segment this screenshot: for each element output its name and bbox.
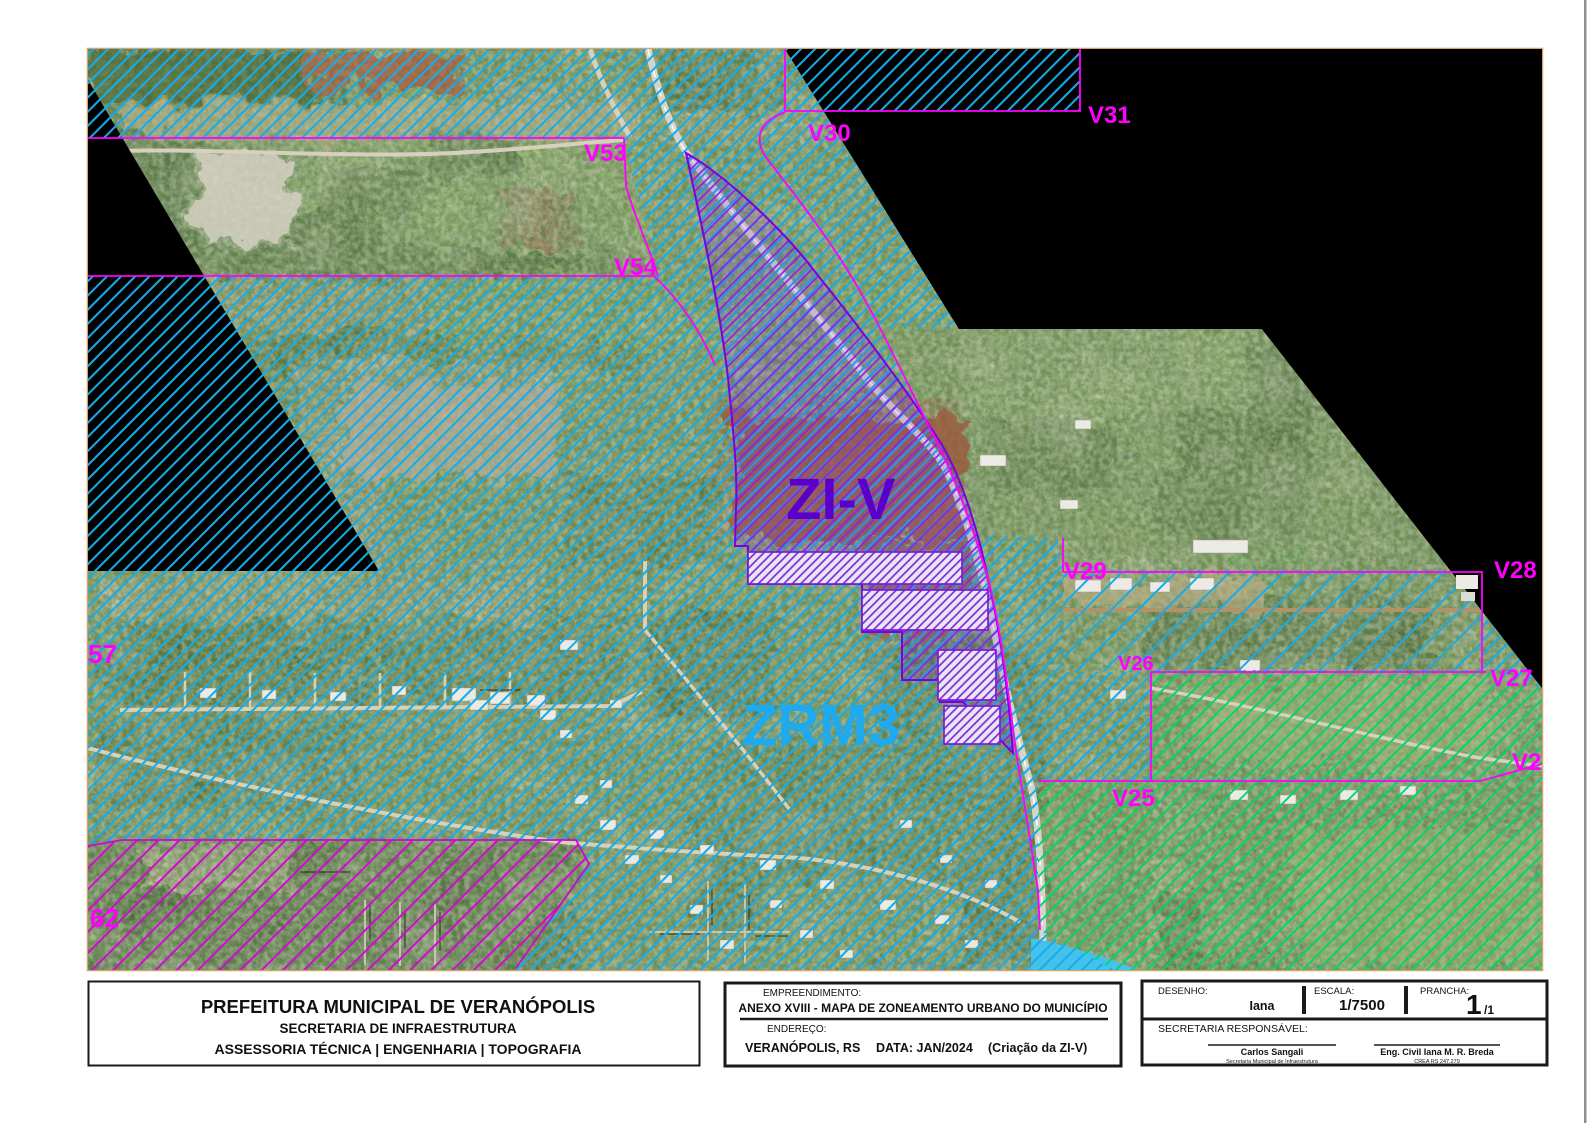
svg-text:62: 62	[90, 903, 119, 933]
svg-text:SECRETARIA RESPONSÁVEL:: SECRETARIA RESPONSÁVEL:	[1158, 1022, 1308, 1035]
svg-text:Carlos Sangali: Carlos Sangali	[1241, 1047, 1304, 1057]
svg-text:EMPREENDIMENTO:: EMPREENDIMENTO:	[763, 988, 861, 999]
svg-text:ZRM3: ZRM3	[742, 693, 900, 758]
svg-text:VERANÓPOLIS, RS: VERANÓPOLIS, RS	[745, 1040, 860, 1055]
svg-text:ASSESSORIA TÉCNICA | ENGENHARI: ASSESSORIA TÉCNICA | ENGENHARIA | TOPOGR…	[215, 1041, 582, 1057]
svg-text:V2: V2	[1512, 749, 1541, 776]
svg-text:V26: V26	[1118, 653, 1154, 675]
svg-text:/1: /1	[1484, 1003, 1494, 1017]
svg-text:1/7500: 1/7500	[1339, 997, 1385, 1014]
svg-text:V25: V25	[1112, 785, 1155, 812]
svg-text:V31: V31	[1088, 102, 1131, 129]
svg-text:SECRETARIA DE INFRAESTRUTURA: SECRETARIA DE INFRAESTRUTURA	[279, 1021, 516, 1036]
svg-text:CREA RS 247.279: CREA RS 247.279	[1414, 1059, 1460, 1065]
svg-text:ENDEREÇO:: ENDEREÇO:	[767, 1024, 826, 1035]
svg-text:ANEXO XVIII - MAPA DE ZONEAMEN: ANEXO XVIII - MAPA DE ZONEAMENTO URBANO …	[738, 1000, 1107, 1015]
svg-text:V27: V27	[1490, 665, 1533, 692]
svg-text:V54: V54	[614, 254, 657, 281]
svg-text:1: 1	[1466, 989, 1482, 1020]
svg-text:ESCALA:: ESCALA:	[1314, 986, 1354, 997]
svg-text:Secretaria Municipal de Infrae: Secretaria Municipal de Infraestrutura	[1226, 1059, 1319, 1065]
svg-text:V30: V30	[808, 120, 851, 147]
svg-text:PRANCHA:: PRANCHA:	[1420, 986, 1469, 997]
svg-text:V29: V29	[1064, 558, 1107, 585]
svg-text:ZI-V: ZI-V	[786, 467, 896, 532]
svg-text:(Criação da ZI-V): (Criação da ZI-V)	[988, 1041, 1087, 1055]
svg-text:V53: V53	[584, 140, 627, 167]
svg-text:DATA: JAN/2024: DATA: JAN/2024	[876, 1041, 973, 1055]
svg-text:V28: V28	[1494, 557, 1537, 584]
svg-text:DESENHO:: DESENHO:	[1158, 986, 1208, 997]
svg-text:57: 57	[88, 639, 117, 669]
svg-text:Iana: Iana	[1249, 999, 1275, 1013]
svg-text:Eng. Civil Iana M. R. Breda: Eng. Civil Iana M. R. Breda	[1380, 1047, 1495, 1057]
svg-text:PREFEITURA MUNICIPAL DE VERANÓ: PREFEITURA MUNICIPAL DE VERANÓPOLIS	[201, 996, 595, 1017]
